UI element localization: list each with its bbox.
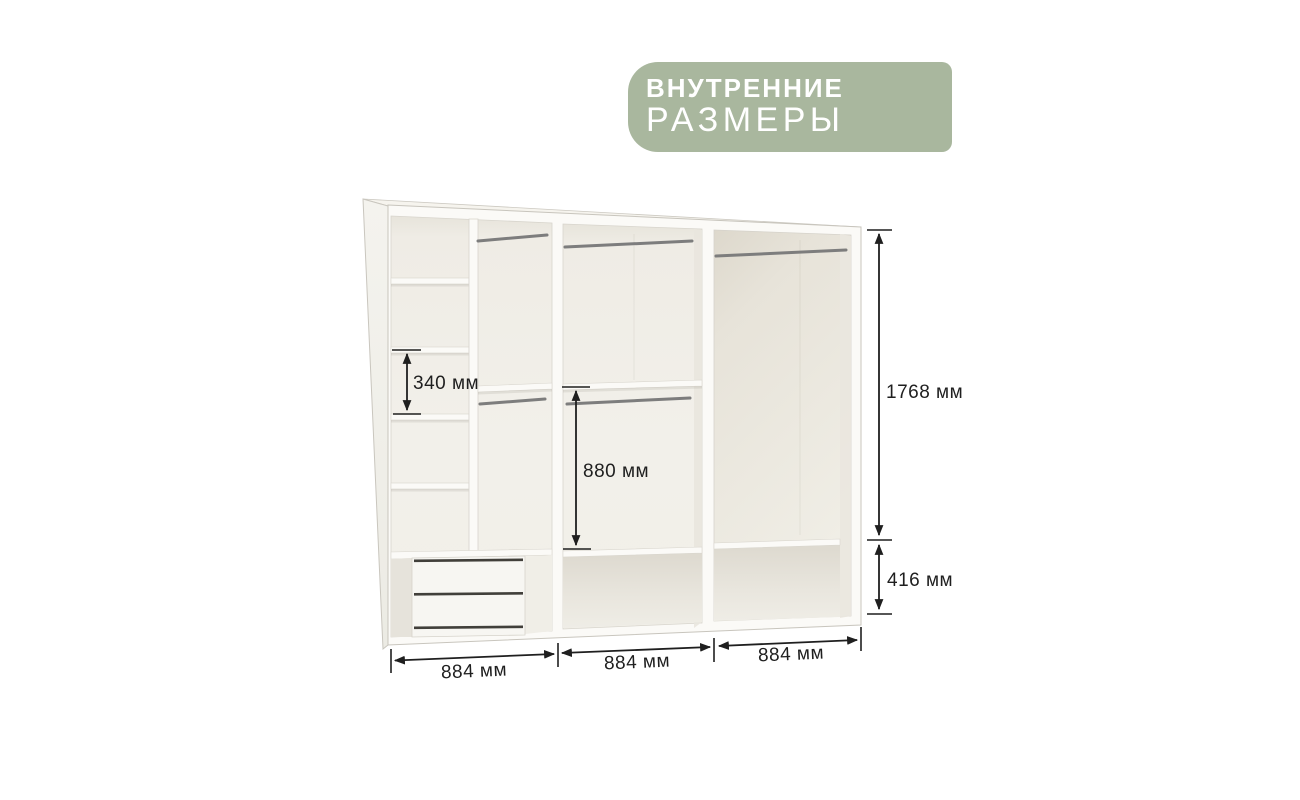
dim-label-416: 416 мм xyxy=(887,570,953,591)
dim-label-884-middle: 884 мм xyxy=(604,651,671,675)
bottom-compartment xyxy=(563,553,702,628)
dim-884-left: 884 мм xyxy=(391,643,558,683)
section-middle xyxy=(563,224,702,629)
dim-416: 416 мм xyxy=(867,545,953,614)
dim-label-884-right: 884 мм xyxy=(758,643,825,667)
dim-label-880: 880 мм xyxy=(583,461,649,482)
wardrobe-diagram: 340 мм 880 мм 1768 мм 416 мм xyxy=(0,0,1300,800)
dim-884-middle: 884 мм xyxy=(562,638,714,674)
bottom-compartment xyxy=(714,545,840,621)
shelf-shadow xyxy=(391,284,469,287)
shelf-shadow xyxy=(391,420,469,423)
drawer-side-gap xyxy=(525,555,552,634)
shelf-shadow xyxy=(391,489,469,492)
shelf-shadow xyxy=(391,353,469,356)
dim-label-884-left: 884 мм xyxy=(441,660,508,684)
section-right xyxy=(714,230,851,621)
drawer-fronts xyxy=(412,556,525,637)
dim-label-340: 340 мм xyxy=(413,373,479,394)
product-dimension-image: ВНУТРЕННИЕ РАЗМЕРЫ xyxy=(0,0,1300,800)
dim-1768: 1768 мм xyxy=(867,230,963,540)
dim-884-right: 884 мм xyxy=(719,627,861,666)
interior-right-wall xyxy=(840,234,851,618)
dim-label-1768: 1768 мм xyxy=(886,382,963,403)
section-left xyxy=(391,216,552,637)
shelf xyxy=(391,278,469,284)
shelf xyxy=(391,483,469,489)
drawer-side-gap xyxy=(391,558,412,637)
shelf xyxy=(391,414,469,420)
drawer-unit xyxy=(412,556,525,637)
left-side-panel xyxy=(363,199,388,649)
